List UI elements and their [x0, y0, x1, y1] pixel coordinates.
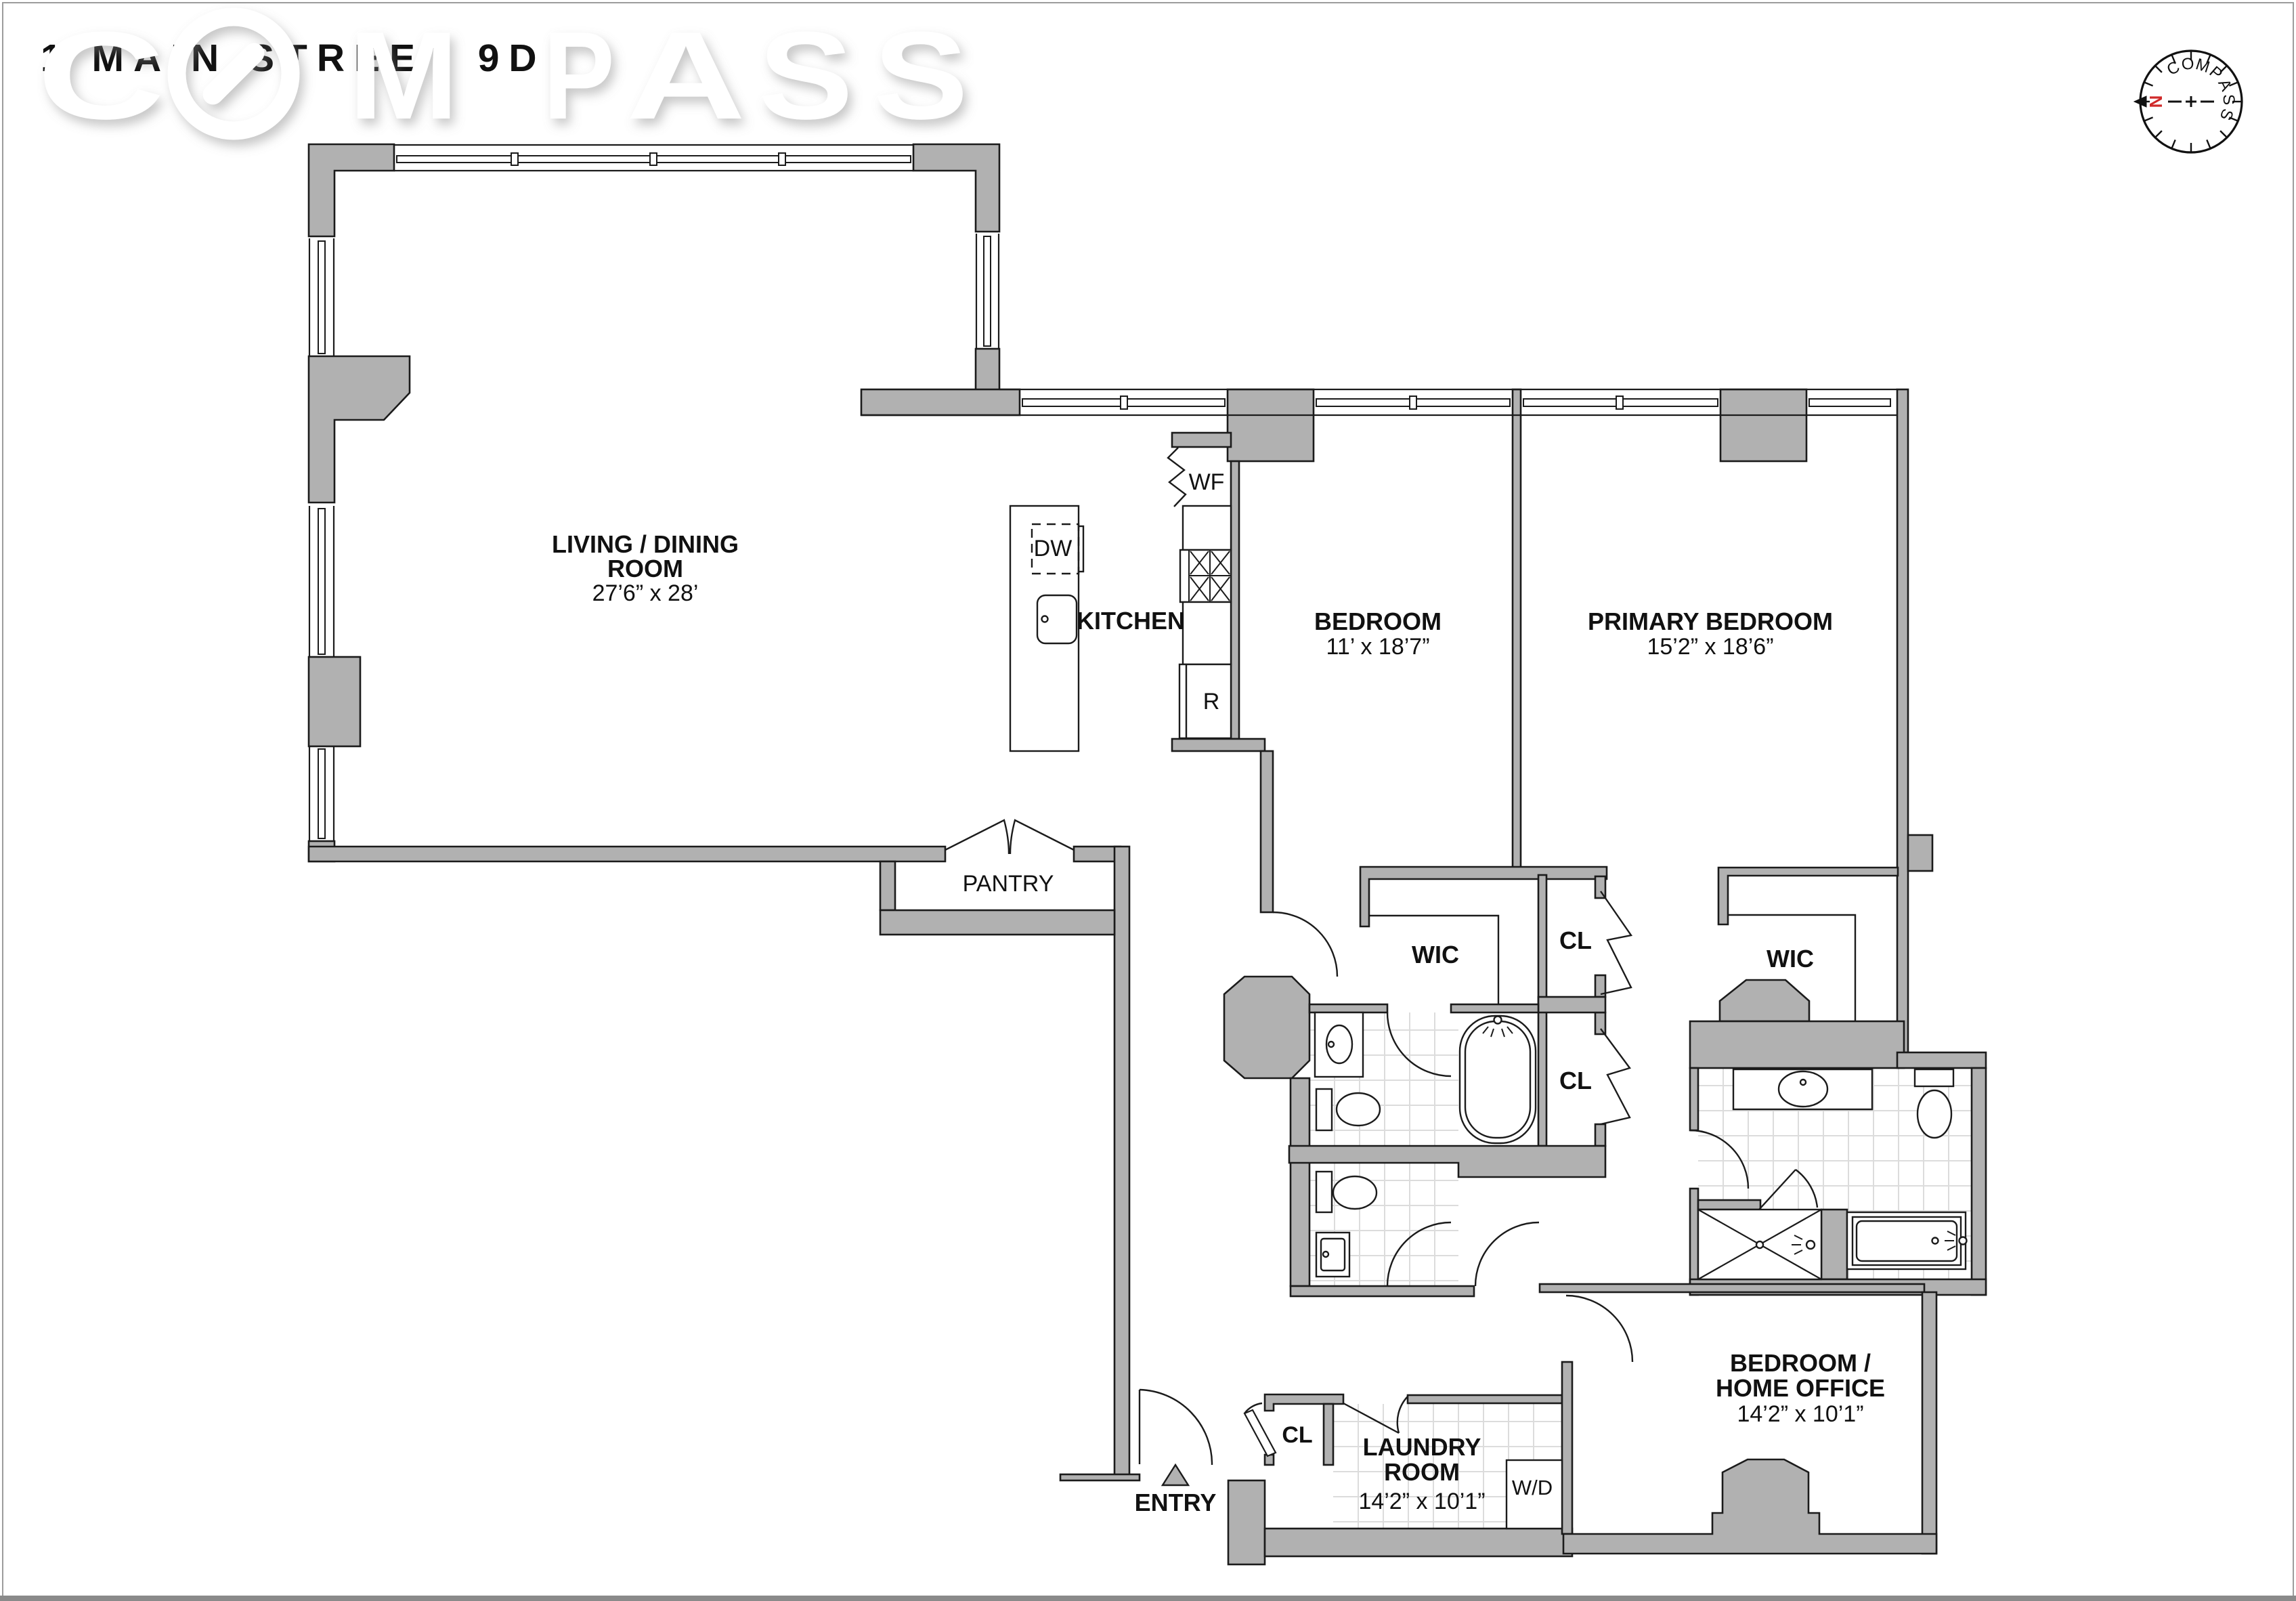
svg-text:M: M [349, 6, 458, 146]
svg-text:WIC: WIC [1767, 945, 1814, 973]
svg-text:ROOM: ROOM [1384, 1458, 1460, 1486]
svg-text:A: A [626, 5, 746, 145]
svg-text:15’2” x 18’6”: 15’2” x 18’6” [1647, 634, 1773, 660]
svg-text:P: P [543, 7, 615, 146]
svg-text:27’6” x 28’: 27’6” x 28’ [592, 580, 699, 606]
svg-text:BEDROOM /: BEDROOM / [1730, 1349, 1871, 1377]
svg-text:DW: DW [1034, 536, 1073, 561]
svg-text:PANTRY: PANTRY [963, 871, 1054, 897]
svg-text:O: O [2181, 54, 2195, 74]
svg-text:CL: CL [1282, 1422, 1312, 1448]
svg-text:S: S [758, 5, 853, 145]
svg-text:CL: CL [1559, 1067, 1592, 1094]
svg-text:CL: CL [1559, 926, 1592, 954]
svg-text:ROOM: ROOM [607, 555, 683, 582]
svg-text:ENTRY: ENTRY [1135, 1489, 1217, 1516]
svg-text:HOME OFFICE: HOME OFFICE [1716, 1374, 1885, 1402]
svg-text:KITCHEN: KITCHEN [1077, 607, 1185, 635]
svg-text:C: C [37, 5, 165, 145]
svg-text:14’2” x 10’1”: 14’2” x 10’1” [1358, 1489, 1485, 1514]
svg-text:11’ x 18’7”: 11’ x 18’7” [1326, 634, 1429, 660]
svg-text:WF: WF [1189, 469, 1225, 495]
svg-text:14’2” x 10’1”: 14’2” x 10’1” [1737, 1401, 1863, 1427]
svg-text:N: N [2146, 95, 2166, 108]
svg-text:LIVING / DINING: LIVING / DINING [552, 530, 739, 558]
svg-text:PRIMARY BEDROOM: PRIMARY BEDROOM [1588, 607, 1833, 635]
svg-text:LAUNDRY: LAUNDRY [1363, 1433, 1481, 1461]
svg-text:R: R [1203, 689, 1220, 714]
svg-text:BEDROOM: BEDROOM [1314, 607, 1442, 635]
svg-text:S: S [873, 5, 968, 145]
svg-text:S: S [2219, 93, 2238, 105]
svg-text:WIC: WIC [1412, 941, 1459, 968]
svg-text:W/D: W/D [1512, 1476, 1553, 1499]
